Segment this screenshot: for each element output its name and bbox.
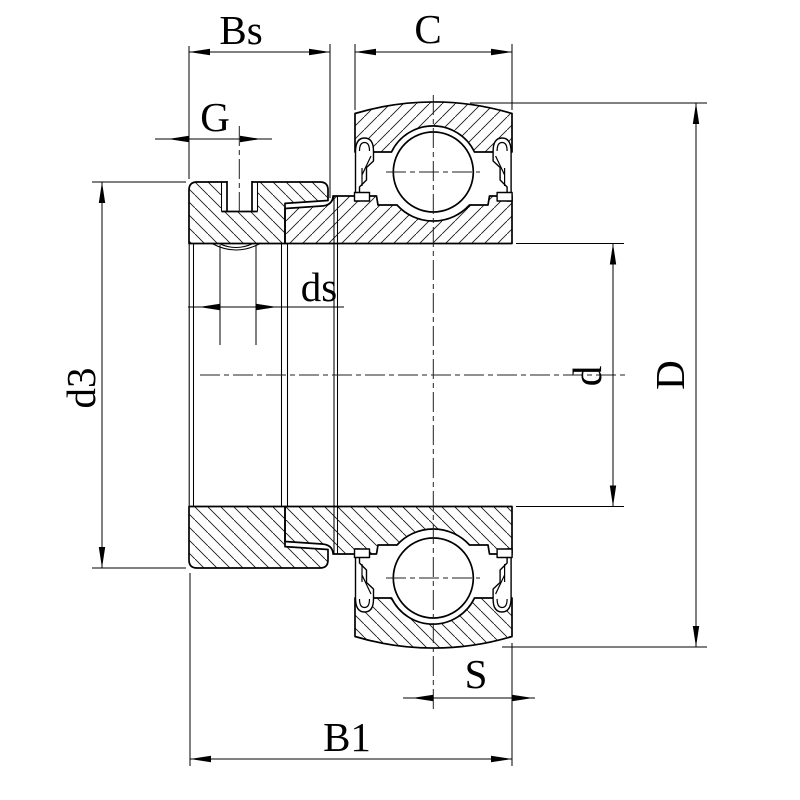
dim-label-ds: ds [301,264,337,310]
dim-label-g: G [200,94,230,140]
dim-label-d3: d3 [58,368,104,409]
dim-label-bs: Bs [219,7,262,53]
dimension-s: S [403,643,535,766]
inner-ring-section-upper [285,196,512,244]
seal-lower-right [493,549,512,612]
dim-label-s: S [465,651,488,697]
dimension-c: C [355,6,512,110]
dimension-ds: ds [188,245,344,345]
eccentric-recess-arcs [212,244,260,251]
seal-lower-left [355,549,374,612]
seal-upper-left [355,138,374,201]
dim-label-c: C [414,6,441,52]
bearing-cross-section-drawing: Bs C G ds d3 d [0,0,800,800]
drawing-canvas: Bs C G ds d3 d [0,0,800,800]
dimension-d3: d3 [58,182,186,568]
dim-label-dd: D [647,360,693,390]
dimension-g: G [155,94,272,142]
dim-label-d: d [564,366,610,387]
dim-label-b1: B1 [323,714,371,760]
inner-ring-section-lower [285,507,512,555]
seal-upper-right [493,138,512,201]
